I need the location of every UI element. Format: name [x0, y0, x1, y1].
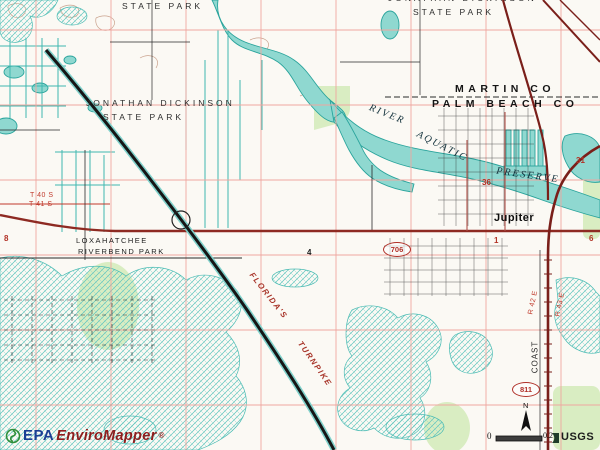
topo-map-canvas — [0, 0, 600, 450]
enviromapper-logo[interactable]: EPA EnviroMapper ® — [5, 427, 164, 444]
epa-wordmark: EPA — [23, 427, 54, 444]
enviromapper-map-view[interactable]: 706 811 STATE PARK JONATHAN DICKINSON ST… — [0, 0, 600, 450]
registered-mark: ® — [159, 431, 165, 440]
route-811-label: 811 — [520, 385, 532, 394]
enviromapper-wordmark: EnviroMapper — [56, 428, 156, 444]
scale-bar — [496, 436, 542, 441]
route-shield-706: 706 — [383, 242, 411, 257]
route-shield-811: 811 — [512, 382, 540, 397]
epa-flower-icon — [5, 428, 21, 444]
route-706-label: 706 — [391, 245, 404, 254]
